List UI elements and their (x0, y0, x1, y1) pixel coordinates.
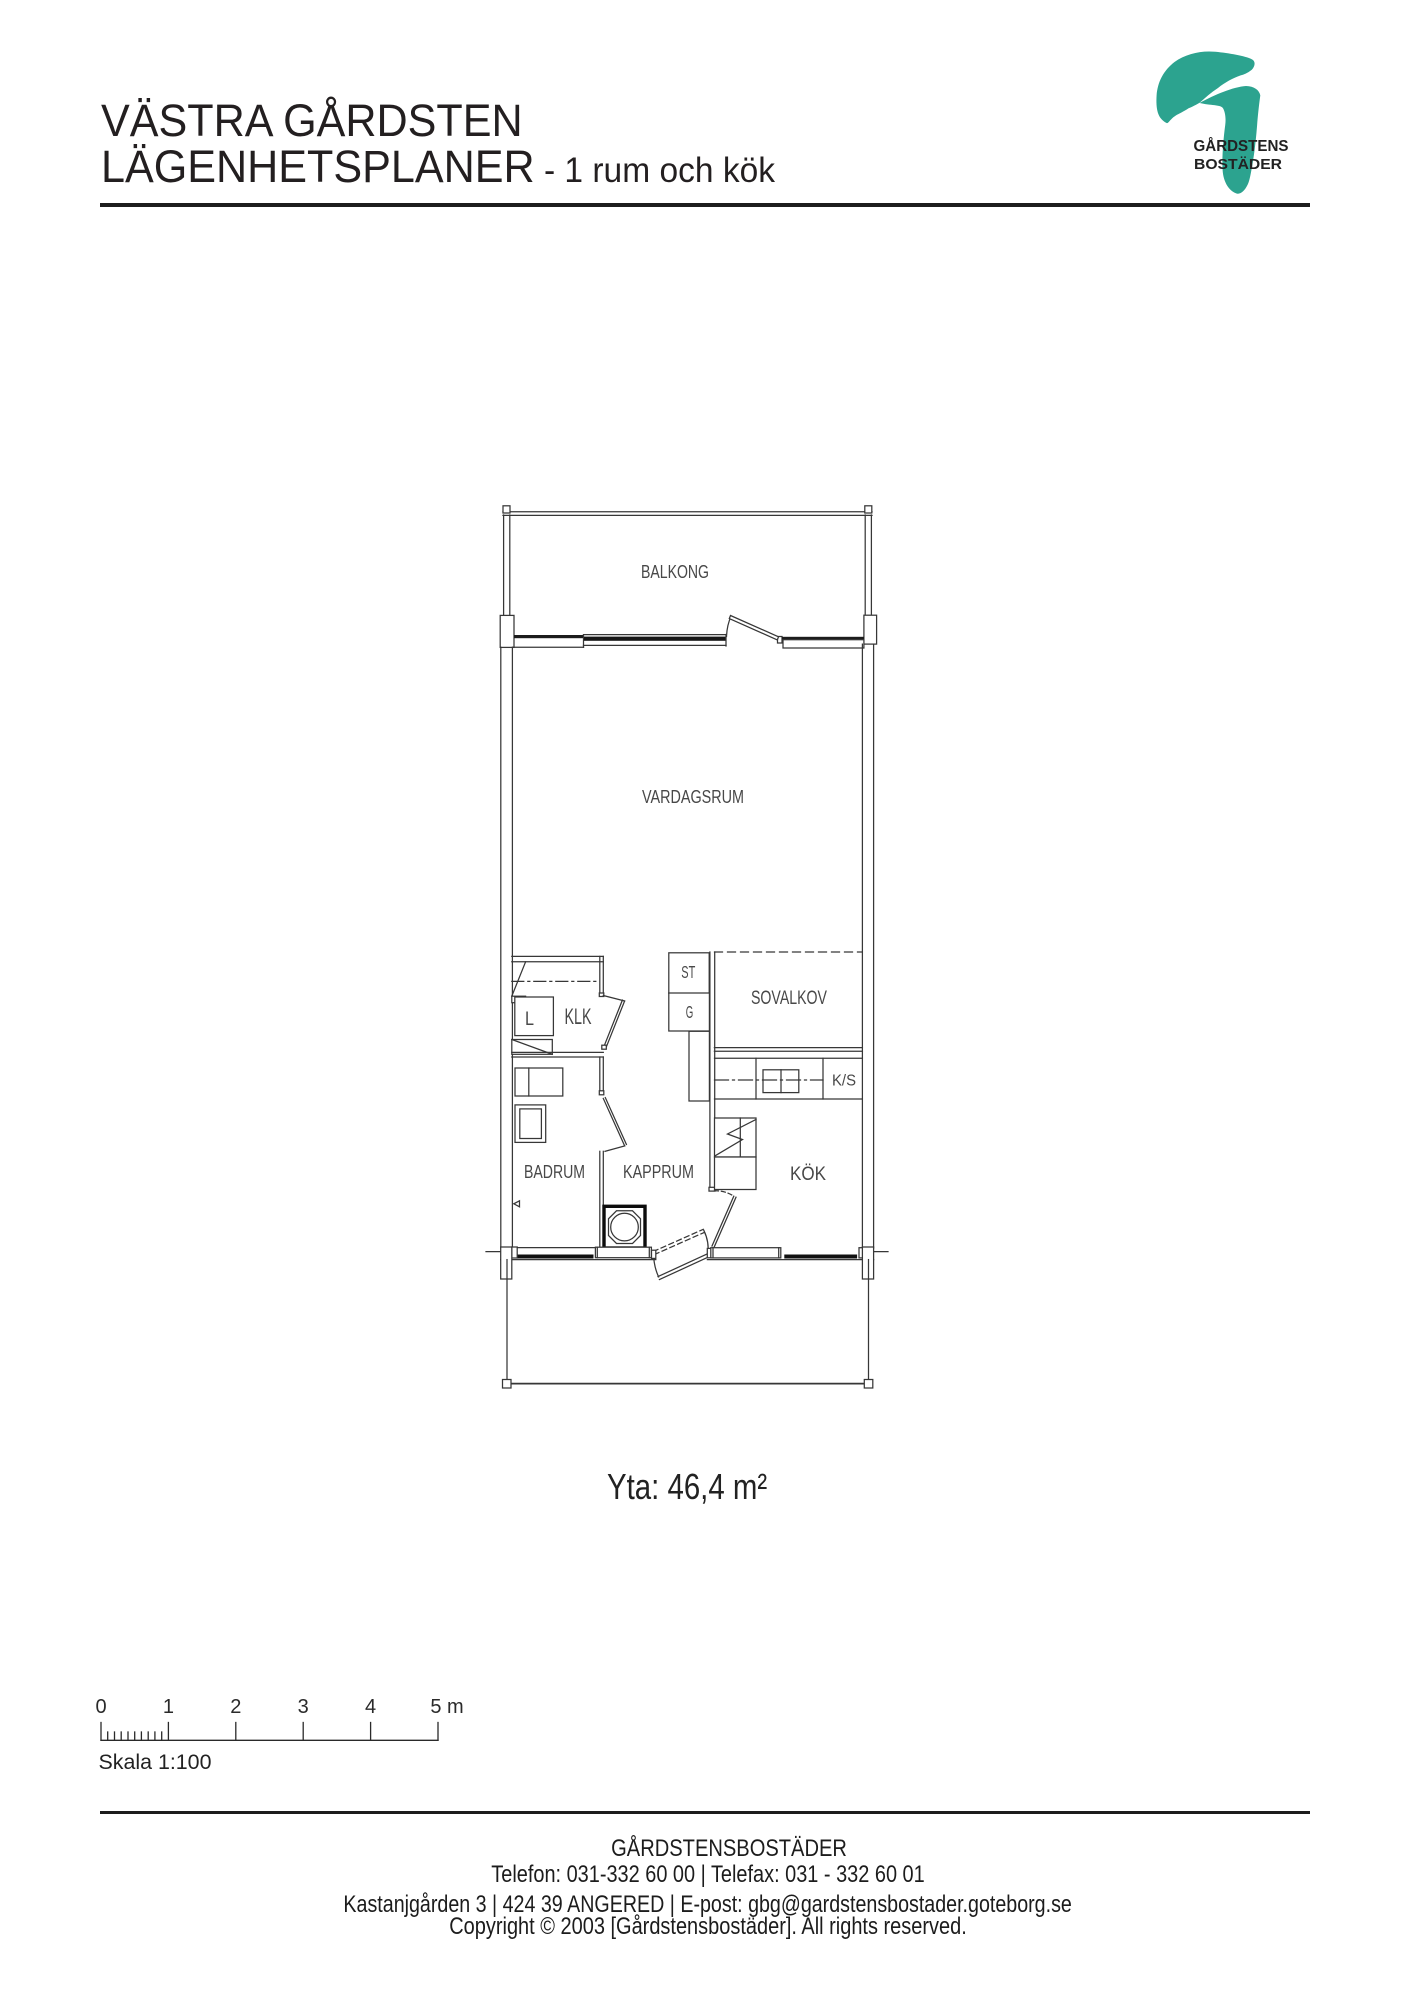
svg-text:ST: ST (681, 962, 695, 982)
svg-text:K/S: K/S (832, 1073, 856, 1090)
svg-text:3: 3 (298, 1696, 309, 1718)
svg-text:1: 1 (163, 1696, 174, 1718)
svg-text:L: L (525, 1009, 534, 1030)
svg-text:5 m: 5 m (430, 1696, 463, 1718)
svg-text:SOVALKOV: SOVALKOV (751, 988, 827, 1009)
svg-text:0: 0 (95, 1696, 106, 1718)
svg-text:VARDAGSRUM: VARDAGSRUM (642, 787, 744, 807)
svg-text:KLK: KLK (565, 1004, 592, 1029)
svg-text:G: G (686, 1002, 694, 1022)
svg-text:KÖK: KÖK (790, 1164, 826, 1185)
svg-text:4: 4 (365, 1696, 376, 1718)
svg-text:BADRUM: BADRUM (524, 1161, 585, 1182)
svg-text:BALKONG: BALKONG (641, 562, 709, 582)
svg-text:2: 2 (230, 1696, 241, 1718)
svg-text:KAPPRUM: KAPPRUM (623, 1161, 694, 1182)
